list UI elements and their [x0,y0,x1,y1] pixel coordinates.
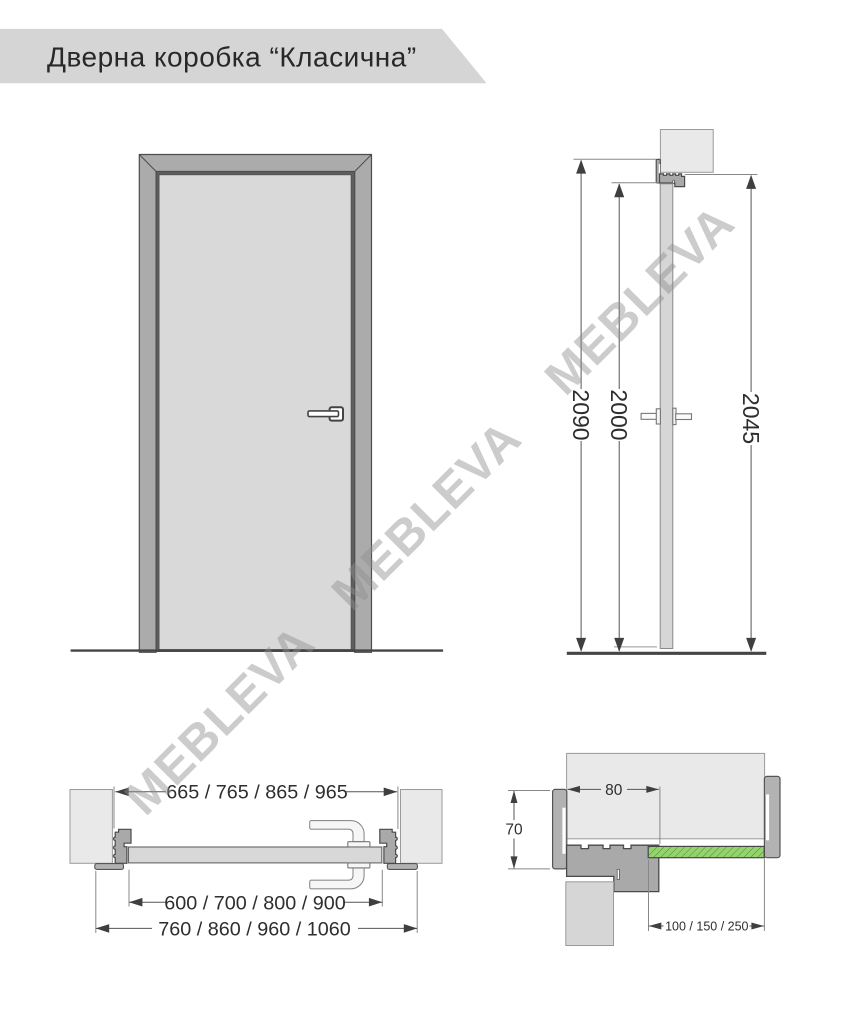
svg-text:600 / 700 / 800 / 900: 600 / 700 / 800 / 900 [164,892,345,914]
svg-text:760 / 860 / 960 / 1060: 760 / 860 / 960 / 1060 [158,919,350,941]
svg-text:Дверна коробка “Класична”: Дверна коробка “Класична” [47,42,417,73]
svg-text:2045: 2045 [738,393,764,444]
svg-text:2000: 2000 [606,389,632,440]
svg-text:80: 80 [605,782,623,799]
svg-text:70: 70 [505,822,523,839]
svg-text:100 / 150 / 250: 100 / 150 / 250 [665,919,748,933]
